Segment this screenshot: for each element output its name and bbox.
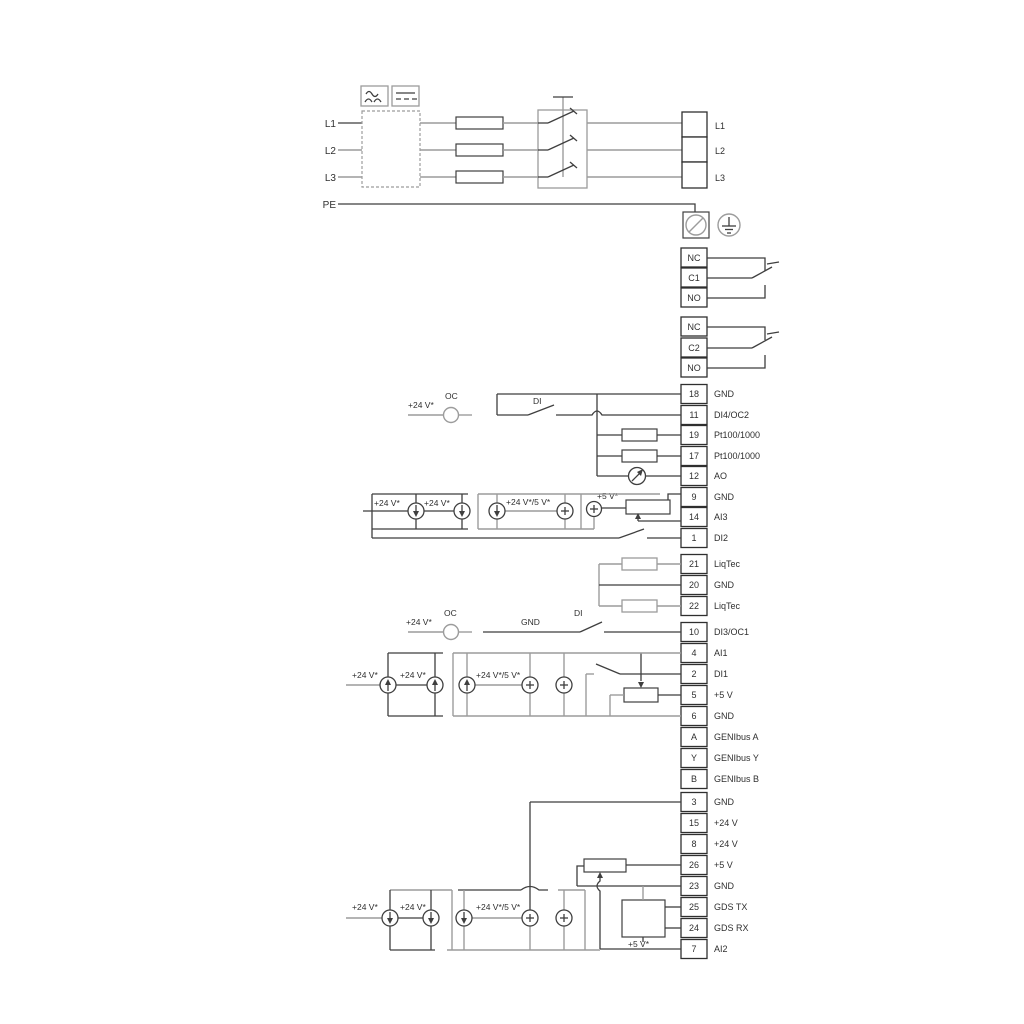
arrow-down-head — [461, 918, 467, 924]
terminal-label: +5 V — [714, 690, 733, 700]
ai2-potentiometer — [584, 859, 626, 872]
ai2-source-ladder: +24 V* +24 V* +24 V*/5 V* — [346, 887, 600, 951]
open-collector-icon — [444, 408, 459, 423]
di1-switch-blade — [596, 664, 620, 674]
p24or5-label: +24 V*/5 V* — [476, 902, 521, 912]
p24-label: +24 V* — [406, 617, 432, 627]
ai1-source-ladder: +24 V* +24 V* +24 V*/5 V* — [346, 653, 681, 716]
rcd-dashed-box — [362, 111, 420, 187]
arrow-down-head — [494, 511, 500, 517]
terminal-number: 25 — [689, 902, 699, 912]
di-label: DI — [533, 396, 542, 406]
ai1-potentiometer — [624, 688, 658, 702]
gnd-label: GND — [521, 617, 540, 627]
terminal-label: L1 — [715, 121, 725, 131]
terminal-label: GND — [714, 389, 735, 399]
terminal-number: 22 — [689, 601, 699, 611]
terminal-label: Pt100/1000 — [714, 451, 760, 461]
fuse-l1 — [456, 117, 503, 129]
terminal-number: A — [691, 732, 697, 742]
terminal-label: DI2 — [714, 533, 728, 543]
io1-terminal-strip: 18 11 19 17 12 9 14 1 GND DI4/OC2 Pt100/… — [681, 385, 760, 548]
terminal-number: NO — [687, 363, 701, 373]
oc-label: OC — [444, 608, 457, 618]
oc-label: OC — [445, 391, 458, 401]
relay-nc-wire — [707, 258, 765, 271]
di-label: DI — [574, 608, 583, 618]
io3-terminal-strip: 3 15 8 26 23 25 24 7 GND +24 V +24 V +5 … — [681, 793, 749, 959]
terminal-number: Y — [691, 753, 697, 763]
terminal-label: GND — [714, 711, 735, 721]
relay-no-wire — [707, 355, 765, 368]
terminal-number: 17 — [689, 451, 699, 461]
io2-circuit: +24 V* OC GND DI — [406, 608, 681, 716]
p24-label: +24 V* — [408, 400, 434, 410]
input-label-l2: L2 — [325, 146, 337, 157]
input-label-pe: PE — [323, 200, 337, 211]
pe-termination — [683, 212, 740, 238]
wiper-arrow — [638, 682, 644, 688]
terminal-label: GND — [714, 492, 735, 502]
arrow-up-head — [464, 679, 470, 685]
fuses — [420, 117, 538, 183]
di2-switch-blade — [619, 529, 644, 538]
arrow-down-head — [459, 511, 465, 517]
terminal-number: 1 — [691, 533, 696, 543]
terminal-label: GND — [714, 797, 735, 807]
arrow-down-head — [428, 918, 434, 924]
terminal-label: +5 V — [714, 860, 733, 870]
terminal-number: 15 — [689, 818, 699, 828]
p24-label: +24 V* — [352, 902, 378, 912]
relay2-block: NC C2 NO — [681, 317, 779, 377]
terminal-label: GENIbus A — [714, 732, 759, 742]
terminal-number: NC — [688, 322, 701, 332]
wiring-diagram-page: L1 L2 L3 PE — [0, 0, 1024, 1024]
terminal-number: 14 — [689, 512, 699, 522]
terminal-number: 7 — [691, 944, 696, 954]
arrow-up-head — [432, 679, 438, 685]
ladder-rail-hop — [521, 887, 548, 891]
terminal-number: 23 — [689, 881, 699, 891]
liqtec-resistor — [622, 600, 657, 612]
terminal-label: AO — [714, 471, 727, 481]
terminal-label: GDS RX — [714, 923, 749, 933]
disconnect-switch — [538, 97, 682, 188]
p24or5-label: +24 V*/5 V* — [506, 497, 551, 507]
arrow-up-head — [385, 679, 391, 685]
di3-switch-blade — [580, 622, 602, 632]
p24-label: +24 V* — [400, 902, 426, 912]
p5-label: +5 V* — [597, 491, 619, 501]
fuse-l2 — [456, 144, 503, 156]
terminal-number: 21 — [689, 559, 699, 569]
relay-contact-blade — [752, 337, 772, 348]
ai3-potentiometer — [626, 500, 670, 514]
di4-switch-blade — [528, 405, 554, 415]
terminal-label: DI4/OC2 — [714, 410, 749, 420]
relay-contact-tick — [767, 332, 779, 334]
terminal-label: +24 V — [714, 839, 738, 849]
terminal-number: B — [691, 774, 697, 784]
terminal-label: L3 — [715, 173, 725, 183]
wire-di4-with-hop — [556, 411, 681, 415]
io1-circuit: DI +24 V* OC +5 V* — [372, 391, 681, 538]
wiper-drop-with-hop — [597, 878, 600, 949]
terminal-number: 4 — [691, 648, 696, 658]
relay-contact-blade — [752, 267, 772, 278]
terminal-label: AI1 — [714, 648, 728, 658]
p24-label: +24 V* — [374, 498, 400, 508]
wiper-arrow — [597, 872, 603, 878]
io2-terminal-strip: 10 4 2 5 6 A Y B DI3/OC1 AI1 DI1 +5 V GN… — [681, 623, 759, 789]
terminal-label: +24 V — [714, 818, 738, 828]
pt100-resistor — [622, 429, 657, 441]
terminal-label: AI3 — [714, 512, 728, 522]
wire — [577, 866, 584, 886]
terminal-label: LiqTec — [714, 559, 741, 569]
terminal-label: GND — [714, 881, 735, 891]
liqtec-resistor — [622, 558, 657, 570]
terminal-number: C2 — [688, 343, 700, 353]
relay-nc-wire — [707, 327, 765, 340]
terminal-number: C1 — [688, 273, 700, 283]
p24-label: +24 V* — [352, 670, 378, 680]
terminal-label: GDS TX — [714, 902, 747, 912]
terminal-number: 5 — [691, 690, 696, 700]
terminal-label: GND — [714, 580, 735, 590]
input-label-l3: L3 — [325, 173, 337, 184]
mains-terminal-block: L1 L2 L3 — [682, 112, 725, 188]
terminal-number: 3 — [691, 797, 696, 807]
wiring-diagram: L1 L2 L3 PE — [0, 0, 1024, 1024]
open-collector-icon — [444, 625, 459, 640]
terminal-label: LiqTec — [714, 601, 741, 611]
fuse-l3 — [456, 171, 503, 183]
gds-module — [622, 900, 665, 937]
io3-circuit: +5 V* — [530, 802, 681, 949]
terminal-number: 24 — [689, 923, 699, 933]
terminal-number: 8 — [691, 839, 696, 849]
arrow-down-head — [387, 918, 393, 924]
p24-label: +24 V* — [400, 670, 426, 680]
terminal-number: 9 — [691, 492, 696, 502]
terminal-number: 19 — [689, 430, 699, 440]
terminal-number: 10 — [689, 627, 699, 637]
terminal-cell — [682, 112, 707, 137]
liqtec-terminal-strip: 21 20 22 LiqTec GND LiqTec — [599, 555, 741, 616]
terminal-number: 26 — [689, 860, 699, 870]
p24-label: +24 V* — [424, 498, 450, 508]
input-label-l1: L1 — [325, 119, 337, 130]
terminal-number: 11 — [689, 410, 698, 420]
relay-contact-tick — [767, 262, 779, 264]
power-section: L1 L2 L3 PE — [323, 86, 740, 238]
terminal-number: 20 — [689, 580, 699, 590]
wire-pe — [338, 204, 695, 212]
p24or5-label: +24 V*/5 V* — [476, 670, 521, 680]
terminal-label: AI2 — [714, 944, 728, 954]
terminal-label: GENIbus Y — [714, 753, 759, 763]
p5-label: +5 V* — [628, 939, 650, 949]
terminal-number: 6 — [691, 711, 696, 721]
terminal-number: NC — [688, 253, 701, 263]
wire-gnd9 — [668, 494, 681, 500]
terminal-cell — [682, 137, 707, 162]
terminal-number: NO — [687, 293, 701, 303]
terminal-cell — [682, 162, 707, 188]
relay-no-wire — [707, 285, 765, 298]
rcd-dc-icon — [392, 86, 419, 106]
arrow-down-head — [413, 511, 419, 517]
terminal-number: 18 — [689, 389, 699, 399]
terminal-label: DI3/OC1 — [714, 627, 749, 637]
terminal-number: 12 — [689, 471, 699, 481]
terminal-label: L2 — [715, 146, 725, 156]
terminal-label: GENIbus B — [714, 774, 759, 784]
terminal-label: DI1 — [714, 669, 728, 679]
terminal-number: 2 — [691, 669, 696, 679]
relay1-block: NC C1 NO — [681, 248, 779, 307]
terminal-label: Pt100/1000 — [714, 430, 760, 440]
pt100-resistor — [622, 450, 657, 462]
